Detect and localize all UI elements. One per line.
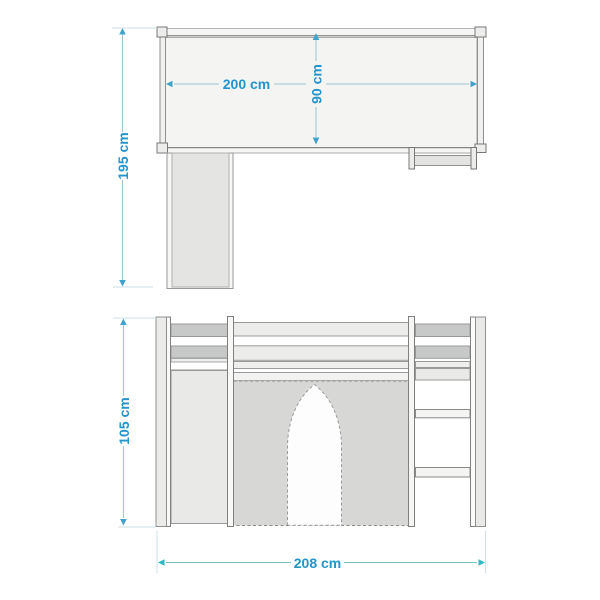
svg-text:200 cm: 200 cm bbox=[223, 76, 270, 92]
svg-text:195 cm: 195 cm bbox=[115, 132, 131, 179]
svg-text:90 cm: 90 cm bbox=[309, 64, 325, 104]
svg-text:105 cm: 105 cm bbox=[116, 397, 132, 444]
svg-text:208 cm: 208 cm bbox=[294, 555, 341, 571]
